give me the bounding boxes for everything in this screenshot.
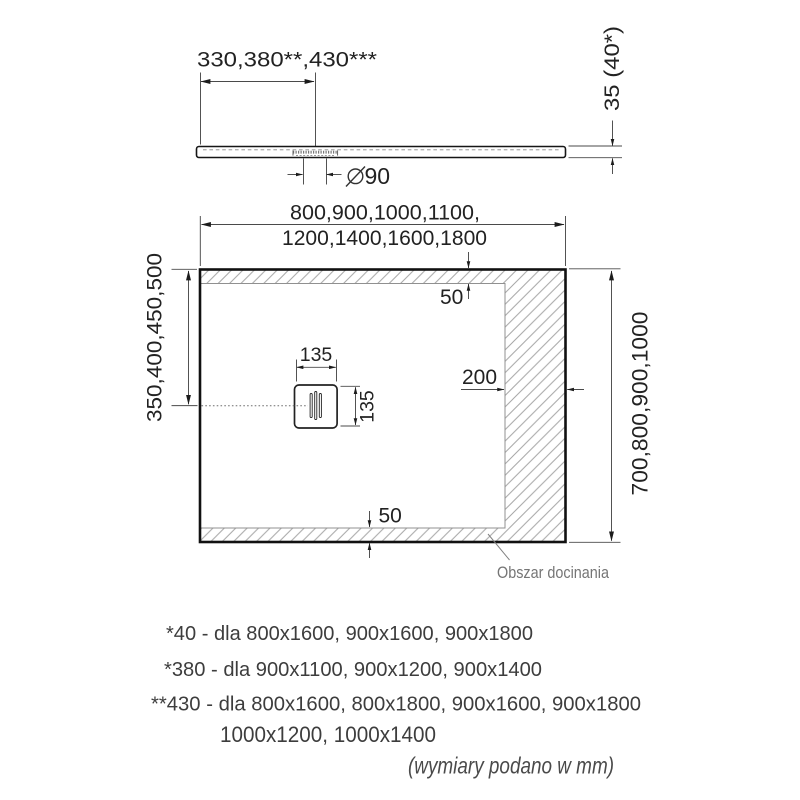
svg-text:Obszar docinania: Obszar docinania (497, 564, 610, 582)
svg-text:135: 135 (357, 390, 379, 423)
svg-text:(wymiary podano w mm): (wymiary podano w mm) (408, 753, 614, 779)
svg-text:50: 50 (379, 505, 402, 528)
svg-text:1200,1400,1600,1800: 1200,1400,1600,1800 (282, 227, 487, 250)
svg-text:35 (40*): 35 (40*) (601, 26, 624, 111)
svg-text:50: 50 (440, 286, 463, 309)
svg-text:330,380**,430***: 330,380**,430*** (197, 49, 377, 72)
svg-text:800,900,1000,1100,: 800,900,1000,1100, (290, 202, 480, 225)
svg-text:*40 - dla 800x1600, 900x1600,: *40 - dla 800x1600, 900x1600, 900x1800 (166, 622, 533, 645)
svg-text:*380 - dla 900x1100, 900x1200,: *380 - dla 900x1100, 900x1200, 900x1400 (164, 658, 542, 681)
svg-text:350,400,450,500: 350,400,450,500 (144, 253, 167, 422)
svg-text:135: 135 (300, 344, 333, 366)
svg-text:200: 200 (462, 366, 497, 389)
svg-text:700,800,900,1000: 700,800,900,1000 (628, 312, 653, 496)
svg-text:1000x1200, 1000x1400: 1000x1200, 1000x1400 (220, 722, 436, 747)
svg-text:**430 - dla 800x1600, 800x1800: **430 - dla 800x1600, 800x1800, 900x1600… (151, 693, 641, 716)
svg-text:90: 90 (365, 163, 391, 189)
